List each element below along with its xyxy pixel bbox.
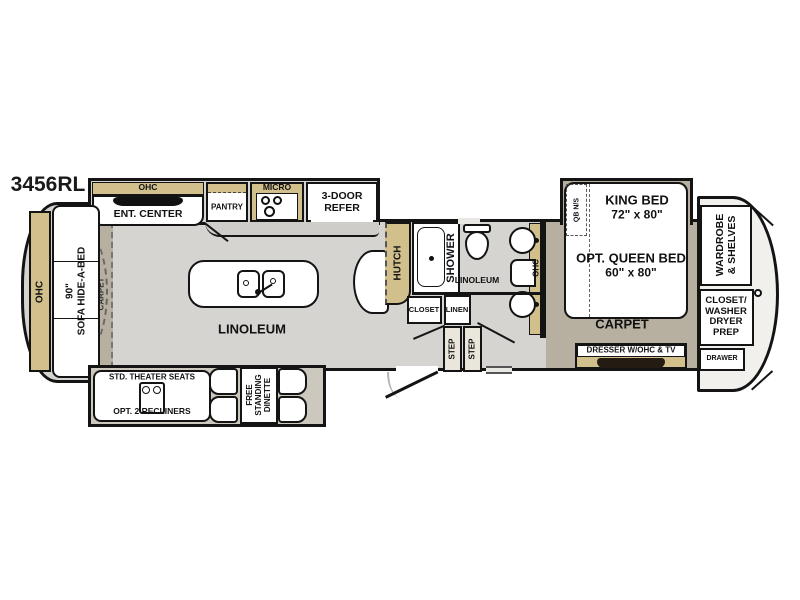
queen-bed-size: 60" x 80" — [605, 266, 656, 279]
cupholder-icon — [153, 386, 161, 394]
dresser-label: DRESSER W/OHC & TV — [587, 347, 676, 356]
sofa-label: 90" SOFA HIDE-A-BED — [65, 247, 88, 336]
dresser-tv-icon — [597, 358, 665, 368]
queen-bed-label: OPT. QUEEN BED — [576, 252, 686, 267]
king-bed-size: 72" x 80" — [611, 208, 662, 221]
refer-label-line2: REFER — [324, 203, 360, 215]
bath-faucet-icon — [534, 238, 539, 243]
bath-wall — [412, 292, 543, 295]
window — [486, 366, 512, 374]
cooktop-burner-icon — [261, 196, 270, 205]
front-ohc-label: OHC — [35, 281, 46, 303]
sink-basin-icon — [262, 270, 285, 298]
dinette-chair — [209, 396, 238, 423]
linen-label: LINEN — [446, 306, 469, 314]
hutch-chair — [353, 250, 389, 314]
kitchen-floor-label: LINOLEUM — [218, 323, 286, 338]
faucet-base-icon — [255, 289, 261, 295]
ohc-label: OHC — [139, 183, 158, 193]
dinette-chair — [209, 368, 238, 395]
bedroom-carpet-label: CARPET — [595, 318, 648, 333]
cooktop-burner-icon — [273, 196, 282, 205]
step-label: STEP — [448, 339, 457, 360]
closet-label: CLOSET — [409, 306, 439, 314]
bath-sink-icon — [509, 227, 536, 254]
refer-label-line1: 3-DOOR — [322, 191, 363, 203]
cooktop-burner-icon — [264, 206, 275, 217]
bedroom-wall — [540, 222, 546, 338]
recliners-label: OPT. 2 RECLINERS — [113, 407, 190, 417]
nightstand-label: QB N/S — [574, 198, 581, 222]
bath-sink-icon — [509, 291, 536, 318]
floorplan-canvas: 3456RL CARPET OHC ENT. CENTER PANTRY MIC… — [0, 0, 800, 600]
dinette-chair — [278, 368, 307, 395]
pantry-ohc-strip — [208, 184, 246, 193]
king-bed-label: KING BED — [605, 194, 669, 209]
model-label: 3456RL — [11, 173, 86, 197]
shower-drain-icon — [429, 256, 434, 261]
ent-center-label: ENT. CENTER — [114, 209, 183, 221]
tv-icon — [113, 197, 183, 206]
bath-floor-label: LINOLEUM — [455, 276, 499, 286]
micro-label: MICRO — [263, 183, 291, 193]
hutch-label: HUTCH — [393, 246, 404, 281]
dinette-chair — [278, 396, 307, 423]
drawer-label: DRAWER — [706, 355, 737, 363]
dinette-label: FREE STANDING DINETTE — [245, 374, 273, 415]
kitchen-counter — [205, 222, 379, 237]
window — [458, 218, 480, 224]
door-handle-icon — [754, 289, 762, 297]
closet-washer-label: CLOSET/ WASHER DRYER PREP — [705, 296, 747, 339]
step-label: STEP — [468, 339, 477, 360]
cupholder-icon — [142, 386, 150, 394]
bath-faucet-icon — [534, 302, 539, 307]
wardrobe-label: WARDROBE & SHELVES — [714, 214, 738, 276]
sink-drain-icon — [243, 280, 249, 286]
pantry-label: PANTRY — [211, 204, 243, 213]
